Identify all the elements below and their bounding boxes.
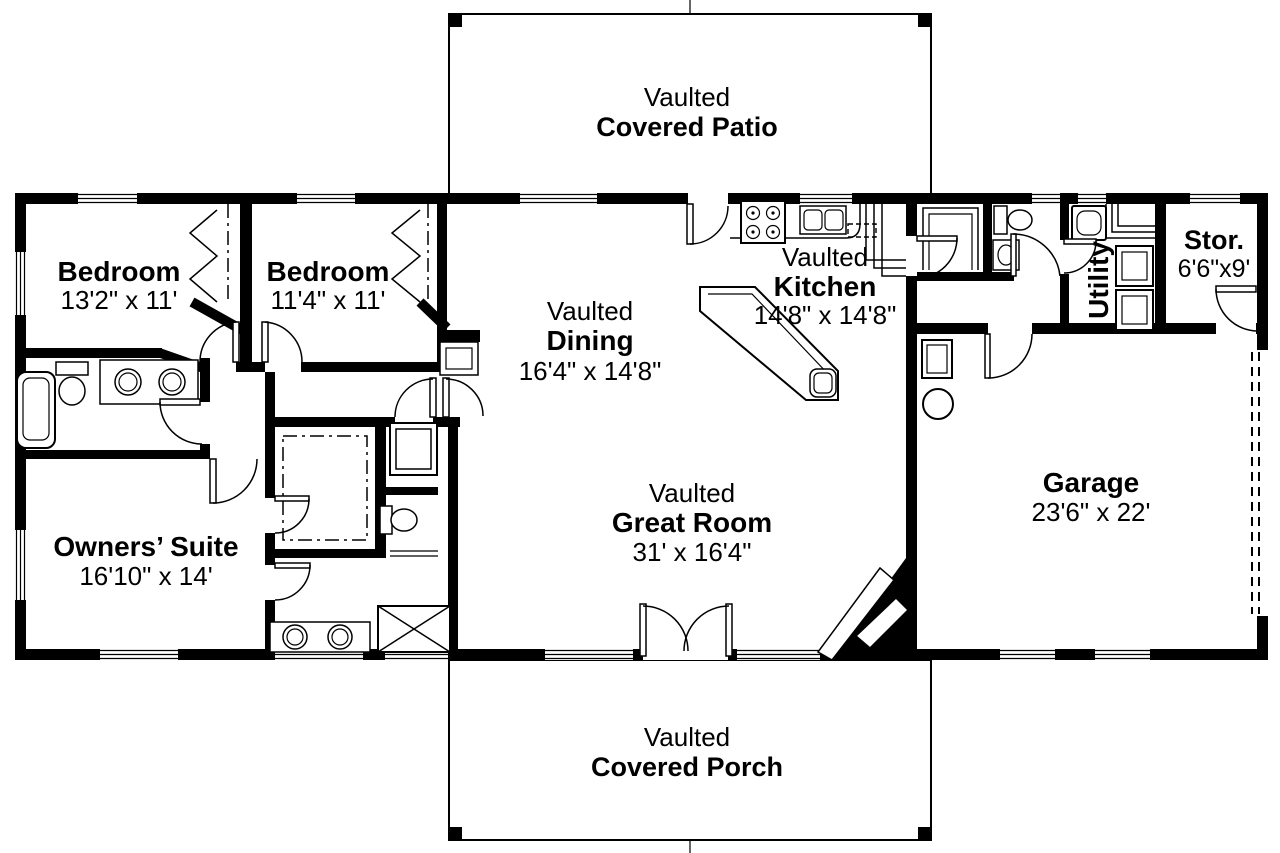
- storage-dims: 6'6"x9': [1178, 255, 1251, 283]
- window-icon: [1032, 193, 1060, 204]
- toilet-icon: [56, 362, 88, 375]
- door-icon: [275, 496, 309, 533]
- owners-suite-name: Owners’ Suite: [53, 531, 238, 562]
- porch-post-left: [449, 827, 462, 840]
- bedroom2-closet: [392, 204, 428, 302]
- great-room-dims: 31' x 16'4": [633, 537, 752, 567]
- floor-plan: Vaulted Covered Patio Vaulted Covered Po…: [0, 0, 1280, 853]
- patio-post-right: [918, 14, 931, 27]
- stove-icon: [741, 201, 785, 243]
- patio-door-opening: [688, 193, 728, 204]
- dining-prefix: Vaulted: [547, 296, 633, 326]
- door-icon: [160, 399, 202, 444]
- window-icon: [15, 252, 26, 315]
- storage-name: Stor.: [1184, 225, 1244, 255]
- walk-in-closet-rod: [283, 436, 367, 540]
- patio-post-left: [449, 14, 462, 27]
- utility-counter: [1106, 204, 1155, 238]
- door-icon: [687, 204, 728, 244]
- bifold-door-icon: [392, 210, 420, 302]
- kitchen-dims: 14'8" x 14'8": [754, 300, 897, 330]
- porch-post-right: [918, 827, 931, 840]
- double-vanity-icon: [270, 622, 370, 652]
- door-icon: [275, 563, 310, 600]
- door-icon: [210, 459, 257, 503]
- window-icon: [737, 649, 820, 660]
- furnace-icon: [923, 389, 953, 419]
- toilet-icon: [994, 206, 1007, 234]
- bedroom1-name: Bedroom: [58, 256, 181, 287]
- window-icon: [100, 649, 178, 660]
- door-icon: [395, 378, 436, 417]
- patio-name: Covered Patio: [596, 112, 778, 142]
- window-icon: [545, 649, 633, 660]
- labels: Vaulted Covered Patio Vaulted Covered Po…: [53, 82, 1250, 782]
- floor-plan-drawing: Vaulted Covered Patio Vaulted Covered Po…: [0, 0, 1280, 853]
- bedroom1-closet: [190, 204, 228, 302]
- porch-label: Vaulted: [644, 722, 730, 752]
- dining-cabinet: [440, 342, 478, 375]
- great-room-name: Great Room: [612, 507, 772, 538]
- door-icon: [443, 378, 483, 417]
- great-room-prefix: Vaulted: [649, 478, 735, 508]
- window-icon: [1078, 193, 1106, 204]
- kitchen-name: Kitchen: [774, 271, 877, 302]
- window-icon: [297, 193, 355, 204]
- bifold-door-icon: [190, 210, 217, 302]
- corner-counter: [866, 204, 906, 276]
- kitchen-sink-icon: [800, 206, 846, 234]
- dishwasher-icon: [848, 224, 876, 237]
- door-icon: [1216, 286, 1258, 331]
- bedroom2-name: Bedroom: [267, 256, 390, 287]
- garage-dims: 23'6" x 22': [1032, 497, 1151, 527]
- window-icon: [800, 193, 852, 204]
- dining-dims: 16'4" x 14'8": [519, 356, 662, 386]
- window-icon: [15, 530, 26, 600]
- garage-name: Garage: [1043, 467, 1140, 498]
- shower-icon: [390, 423, 437, 475]
- french-door-icon: [640, 604, 732, 656]
- patio-label: Vaulted: [644, 82, 730, 112]
- owners-bath-block: [270, 423, 450, 652]
- window-icon: [78, 193, 137, 204]
- kitchen-prefix: Vaulted: [782, 242, 868, 272]
- bedroom1-dims: 13'2" x 11': [61, 285, 178, 315]
- porch-name: Covered Porch: [591, 752, 783, 782]
- fireplace-icon: [818, 558, 917, 660]
- window-icon: [1190, 193, 1240, 204]
- shower-x-icon: [378, 606, 450, 652]
- owners-suite-dims: 16'10" x 14': [79, 561, 212, 591]
- bedroom2-dims: 11'4" x 11': [270, 285, 385, 315]
- window-icon: [520, 193, 597, 204]
- door-icon: [262, 322, 302, 362]
- window-icon: [1095, 649, 1150, 660]
- dining-name: Dining: [546, 325, 633, 356]
- door-icon: [200, 322, 239, 362]
- door-icon: [985, 334, 1032, 378]
- toilet-icon: [380, 506, 392, 534]
- utility-name: Utility: [1083, 241, 1114, 319]
- window-icon: [1000, 649, 1055, 660]
- porch-door-opening: [643, 649, 728, 660]
